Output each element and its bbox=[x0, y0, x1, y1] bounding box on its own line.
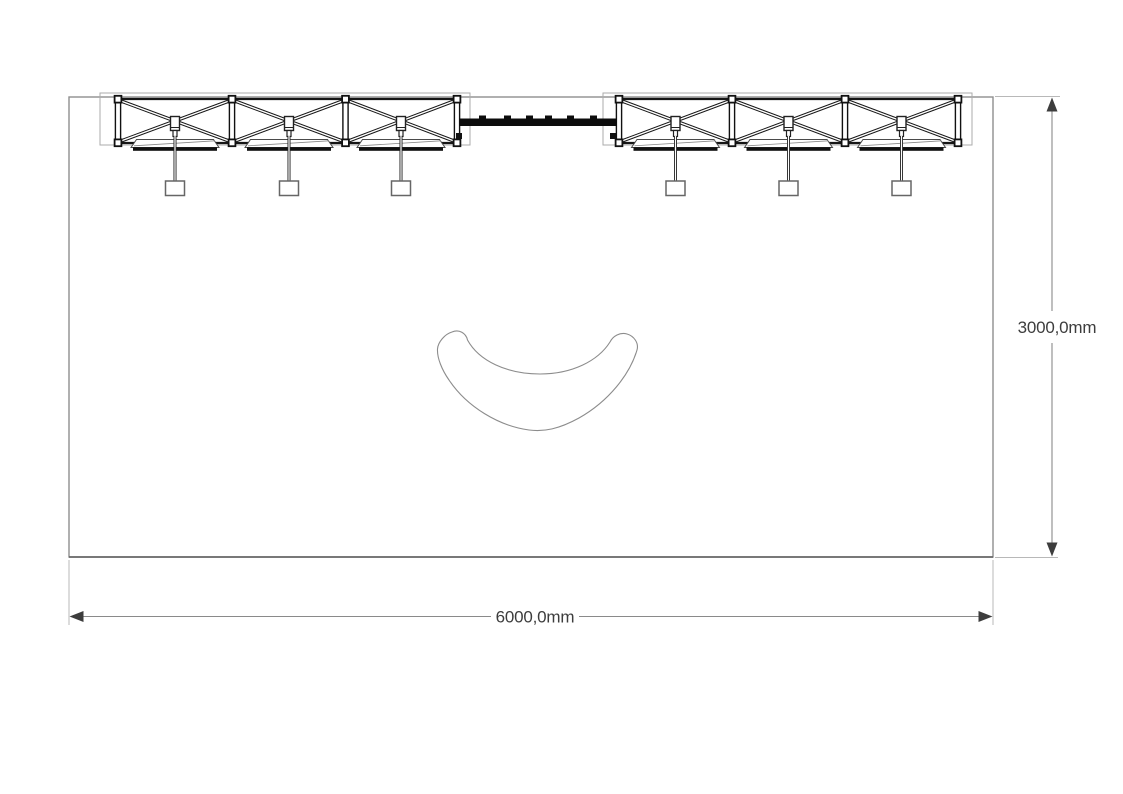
beam-end-block-right bbox=[610, 133, 616, 139]
spotlight bbox=[779, 117, 798, 196]
spotlight bbox=[166, 117, 185, 196]
beam-bar bbox=[459, 119, 617, 127]
arrow-left-icon bbox=[70, 611, 84, 622]
center-beam bbox=[456, 116, 617, 140]
width-dimension-label: 6000,0mm bbox=[496, 608, 575, 627]
arrow-down-icon bbox=[1047, 543, 1058, 557]
beam-end-block-left bbox=[456, 133, 462, 139]
spotlight-head bbox=[392, 181, 411, 196]
spotlight bbox=[392, 117, 411, 196]
shelf-panels bbox=[131, 140, 946, 151]
booth-outline-rect bbox=[69, 97, 993, 557]
curved-counter bbox=[437, 331, 637, 431]
arrow-up-icon bbox=[1047, 98, 1058, 112]
arrow-right-icon bbox=[979, 611, 993, 622]
booth-boundary bbox=[69, 97, 993, 557]
dimension-width: 6000,0mm bbox=[69, 560, 993, 627]
spotlight-head bbox=[166, 181, 185, 196]
spotlight bbox=[280, 117, 299, 196]
floor-plan-drawing: 3000,0mm 6000,0mm bbox=[0, 0, 1123, 794]
spotlight-head bbox=[280, 181, 299, 196]
spotlights bbox=[166, 117, 912, 196]
dimension-height: 3000,0mm bbox=[995, 97, 1096, 558]
spotlight-head bbox=[779, 181, 798, 196]
spotlight bbox=[892, 117, 911, 196]
spotlight-head bbox=[892, 181, 911, 196]
drawing-canvas: 3000,0mm 6000,0mm bbox=[0, 0, 1123, 794]
spotlight bbox=[666, 117, 685, 196]
beam-clamps bbox=[479, 116, 597, 120]
spotlight-head bbox=[666, 181, 685, 196]
height-dimension-label: 3000,0mm bbox=[1018, 318, 1097, 337]
